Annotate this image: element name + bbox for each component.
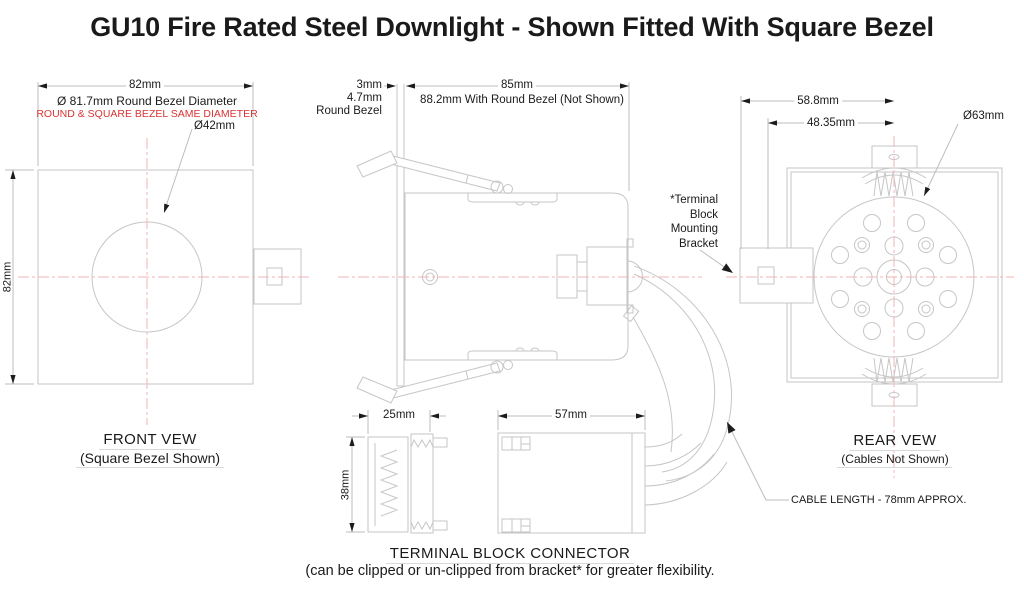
front-width-dimension: 82mm: [126, 79, 164, 91]
front-view-subcaption: (Square Bezel Shown): [76, 450, 224, 468]
rear-view-caption: REAR VEW: [849, 432, 940, 451]
terminal-block-height-dimension: 38mm: [339, 470, 351, 501]
rear-outer-dimension: 58.8mm: [794, 95, 842, 107]
side-width-dimension: 85mm: [498, 79, 536, 91]
terminal-block-drawing: [368, 433, 645, 533]
rear-view-subcaption: (Cables Not Shown): [837, 452, 952, 468]
cable-length-note: CABLE LENGTH - 78mm APPROX.: [791, 494, 966, 506]
front-height-dimension: 82mm: [1, 262, 13, 293]
terminal-bracket-label-line: *Terminal: [640, 193, 718, 208]
centerlines: [18, 136, 1014, 478]
rear-inner-dimension: 48.35mm: [804, 117, 858, 129]
front-bezel-diameter-note: Ø 81.7mm Round Bezel Diameter: [57, 94, 237, 108]
terminal-bracket-label-line: Mounting: [640, 222, 718, 237]
rear-circle-diameter-label: Ø63mm: [963, 110, 1004, 122]
front-bezel-same-note: ROUND & SQUARE BEZEL SAME DIAMETER: [36, 108, 257, 120]
terminal-block-top-width-dimension: 57mm: [552, 409, 590, 421]
side-round-bezel-label: Round Bezel: [300, 105, 382, 117]
side-bezel-thickness-label: 3mm: [300, 79, 382, 91]
front-hole-diameter-label: Ø42mm: [194, 120, 235, 132]
terminal-bracket-label: *Terminal Block Mounting Bracket: [640, 193, 718, 251]
terminal-bracket-label-line: Bracket: [640, 237, 718, 252]
rear-view-drawing: [740, 146, 1002, 406]
front-view-caption: FRONT VEW: [99, 431, 200, 450]
terminal-block-caption: TERMINAL BLOCK CONNECTOR: [386, 545, 634, 564]
side-width-note: 88.2mm With Round Bezel (Not Shown): [420, 94, 624, 106]
terminal-bracket-label-line: Block: [640, 208, 718, 223]
side-round-bezel-thickness-label: 4.7mm: [300, 92, 382, 104]
terminal-block-side-width-dimension: 25mm: [380, 409, 418, 421]
cables: [633, 266, 732, 505]
terminal-block-bracket: [740, 248, 813, 303]
terminal-block-subcaption: (can be clipped or un-clipped from brack…: [305, 563, 714, 579]
drawing-sheet: GU10 Fire Rated Steel Downlight - Shown …: [0, 0, 1024, 596]
page-title: GU10 Fire Rated Steel Downlight - Shown …: [90, 12, 934, 43]
lamp-holder: [557, 239, 642, 322]
